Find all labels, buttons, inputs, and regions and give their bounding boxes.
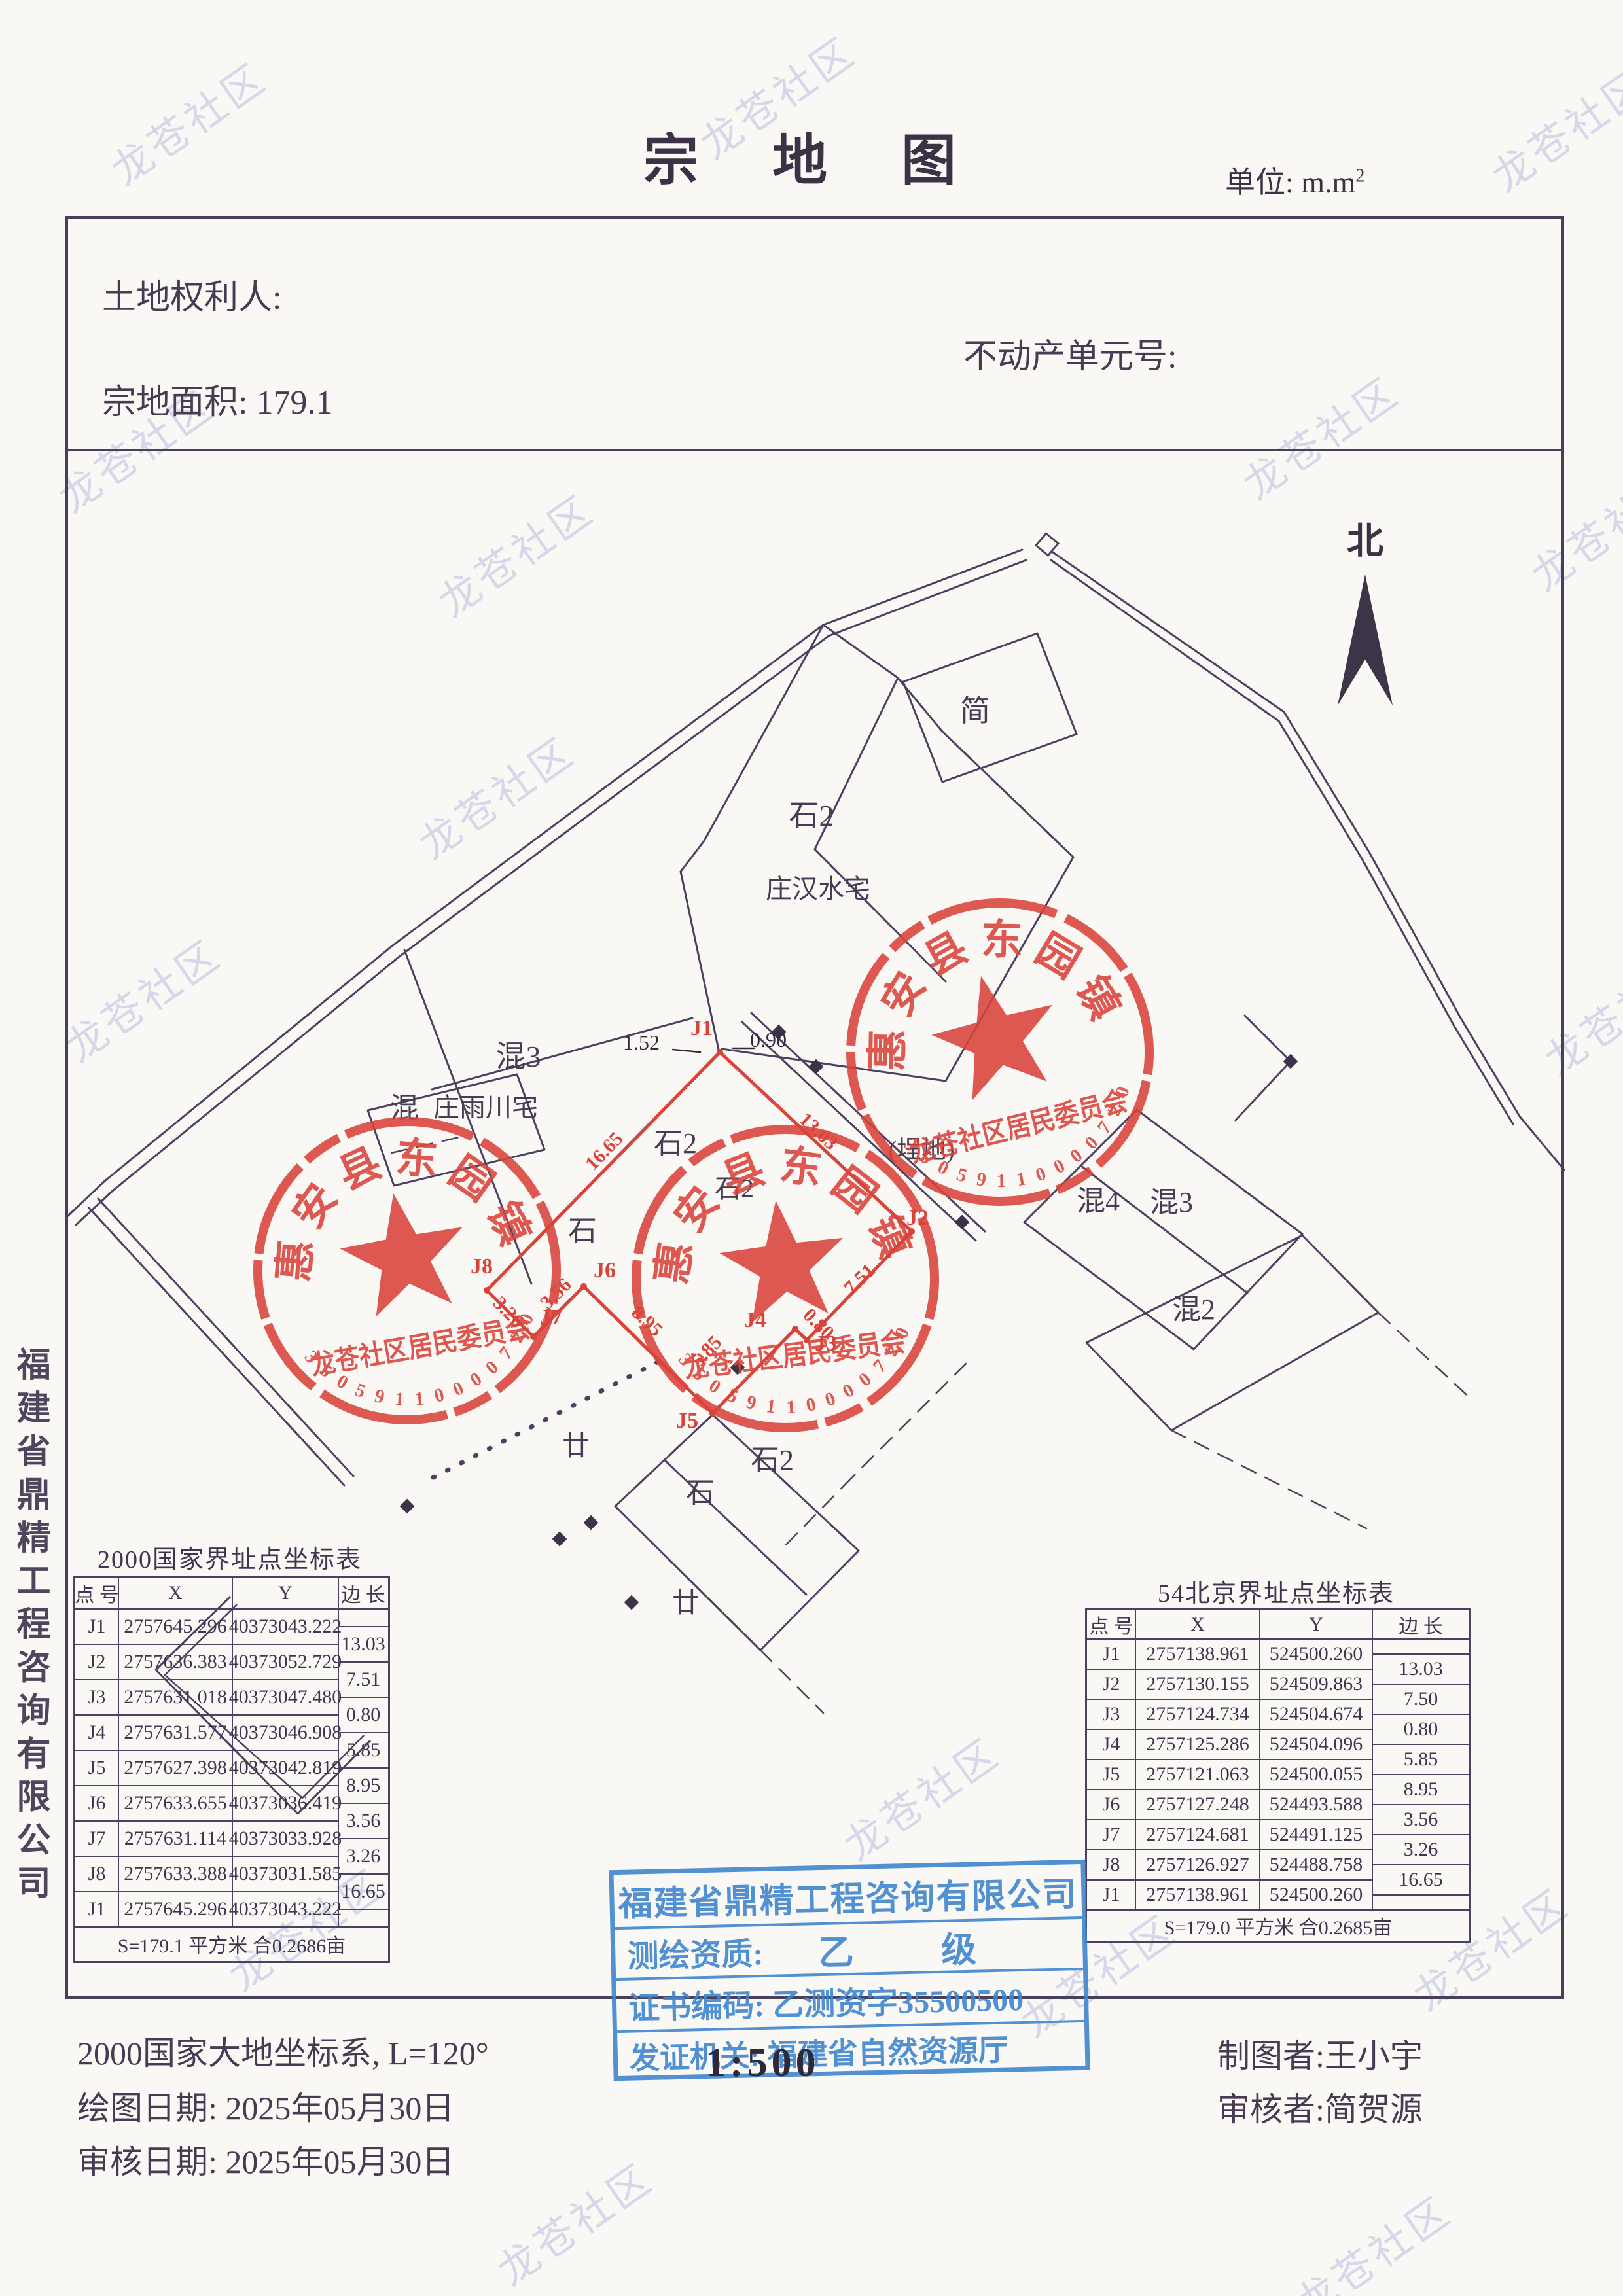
review-date: 审核日期: 2025年05月30日: [77, 2136, 454, 2183]
table-cell: 524500.260: [1260, 1880, 1372, 1910]
table-cell: 2757645.296: [118, 1892, 232, 1927]
table-cell: 8.95: [1372, 1775, 1469, 1805]
table-cell: J1: [75, 1609, 118, 1644]
table-cell: J6: [1087, 1790, 1135, 1820]
estate-unit-number-label: 不动产单元号:: [963, 328, 1177, 378]
land-owner-label: 土地权利人:: [102, 270, 281, 319]
table-cell: 524504.674: [1260, 1699, 1372, 1729]
table-cell: J1: [1087, 1639, 1135, 1669]
table-cell: J3: [1087, 1699, 1135, 1729]
table-cell: 3.56: [1372, 1805, 1469, 1835]
table-cell: 2757124.681: [1135, 1820, 1260, 1850]
table-cell: 40373042.819: [232, 1750, 338, 1786]
table-cell: 2757645.296: [118, 1609, 232, 1644]
table-cell: S=179.1 平方米 合0.2686亩: [75, 1927, 388, 1961]
table-cell: 2757126.927: [1135, 1850, 1260, 1880]
table-cell: 524500.055: [1260, 1759, 1372, 1790]
table-cell: 5.85: [338, 1733, 388, 1768]
stamp-issuer-row: 发证机关: 福建省自然资源厅: [617, 2022, 1085, 2080]
table-cell: 点 号: [1087, 1610, 1135, 1639]
table-cell: 3.56: [338, 1803, 388, 1839]
table-cell: 2757121.063: [1135, 1759, 1260, 1790]
table-cell: 524488.758: [1260, 1850, 1372, 1880]
table-cell: 点 号: [75, 1578, 118, 1609]
table-cell: Y: [1260, 1610, 1372, 1639]
table-cell: 2757627.398: [118, 1750, 232, 1786]
table-cell: J5: [75, 1750, 118, 1786]
table-cell: J8: [1087, 1850, 1135, 1880]
table-cell: 0.80: [1372, 1714, 1469, 1744]
table-cell: J8: [75, 1856, 118, 1892]
drawing-date: 绘图日期: 2025年05月30日: [77, 2082, 454, 2129]
table-cell: X: [118, 1578, 232, 1609]
table-cell: 7.50: [1372, 1684, 1469, 1714]
table-cell: J6: [75, 1786, 118, 1821]
header-box: 土地权利人: 不动产单元号: 宗地面积: 179.1: [68, 219, 1561, 451]
table-cell: J7: [1087, 1820, 1135, 1850]
table-cell: 524500.260: [1260, 1639, 1372, 1669]
table-cell: 40373046.908: [232, 1715, 338, 1750]
stamp-qualification-grade: 乙 级: [762, 1918, 1071, 1977]
reviewer-name: 审核者:简贺源: [1217, 2083, 1423, 2130]
parcel-area-label: 宗地面积: 179.1: [102, 374, 332, 423]
table-cell: 2757633.655: [118, 1786, 232, 1821]
table-cell: 边 长: [1372, 1610, 1469, 1639]
table-cell: J2: [75, 1644, 118, 1680]
table-cell: 2757631.018: [118, 1680, 232, 1715]
table-cell: 2757636.383: [118, 1644, 232, 1680]
table-cell: 40373047.480: [232, 1680, 338, 1715]
table-cell: 40373052.729: [232, 1644, 338, 1680]
table-title: 54北京界址点坐标表: [1085, 1573, 1467, 1609]
map-scale: 1:500: [705, 2040, 820, 2087]
table-cell: 2757631.114: [118, 1821, 232, 1856]
table-cell: 2757631.577: [118, 1715, 232, 1750]
table-cell: J5: [1087, 1759, 1135, 1790]
table-cell: 524491.125: [1260, 1820, 1372, 1850]
parcel-map-document: 龙苍社区龙苍社区龙苍社区龙苍社区龙苍社区龙苍社区龙苍社区龙苍社区龙苍社区龙苍社区…: [0, 0, 1623, 2296]
table-cell: 3.26: [1372, 1835, 1469, 1865]
table-cell: 524493.588: [1260, 1790, 1372, 1820]
table-title: 2000国家界址点坐标表: [73, 1539, 386, 1575]
table-cell: 13.03: [338, 1627, 388, 1662]
table-cell: 16.65: [1372, 1865, 1469, 1895]
table-cell: J1: [1087, 1880, 1135, 1910]
coordinate-system-note: 2000国家大地坐标系, L=120°: [77, 2027, 489, 2074]
table-cell: 2757138.961: [1135, 1880, 1260, 1910]
table-cell: 0.80: [338, 1697, 388, 1733]
table-cell: 40373036.419: [232, 1786, 338, 1821]
table-cell: 边 长: [338, 1578, 388, 1609]
table-cell: 40373031.585: [232, 1856, 338, 1892]
table-cell: 5.85: [1372, 1744, 1469, 1775]
surveyor-qualification-stamp: 福建省鼎精工程咨询有限公司 测绘资质: 乙 级 证书编码: 乙测资字355005…: [609, 1860, 1090, 2081]
table-cell: J3: [75, 1680, 118, 1715]
table-cell: 2757125.286: [1135, 1729, 1260, 1759]
table-cell: 2757124.734: [1135, 1699, 1260, 1729]
table-cell: 2757127.248: [1135, 1790, 1260, 1820]
table-cell: 2757130.155: [1135, 1669, 1260, 1699]
table-cell: 40373033.928: [232, 1821, 338, 1856]
table-cell: 3.26: [338, 1839, 388, 1874]
table-cell: S=179.0 平方米 合0.2685亩: [1087, 1910, 1469, 1941]
table-cell: J7: [75, 1821, 118, 1856]
table-cell: 524509.863: [1260, 1669, 1372, 1699]
table-cell: J1: [75, 1892, 118, 1927]
table-cell: 2757633.388: [118, 1856, 232, 1892]
table-cell: 8.95: [338, 1768, 388, 1803]
table-cell: X: [1135, 1610, 1260, 1639]
drafter-name: 制图者:王小宇: [1217, 2030, 1423, 2077]
table-cell: 7.51: [338, 1662, 388, 1697]
table-cell: J4: [1087, 1729, 1135, 1759]
company-name-vertical: 福建省鼎精工程咨询有限公司: [5, 1347, 54, 2066]
table-cell: 524504.096: [1260, 1729, 1372, 1759]
table-cell: 40373043.222: [232, 1609, 338, 1644]
table-cell: 16.65: [338, 1874, 388, 1909]
table-cell: J4: [75, 1715, 118, 1750]
table-cell: 13.03: [1372, 1654, 1469, 1684]
table-cell: J2: [1087, 1669, 1135, 1699]
table-cell: 2757138.961: [1135, 1639, 1260, 1669]
table-cell: Y: [232, 1578, 338, 1609]
table-cell: 40373043.222: [232, 1892, 338, 1927]
